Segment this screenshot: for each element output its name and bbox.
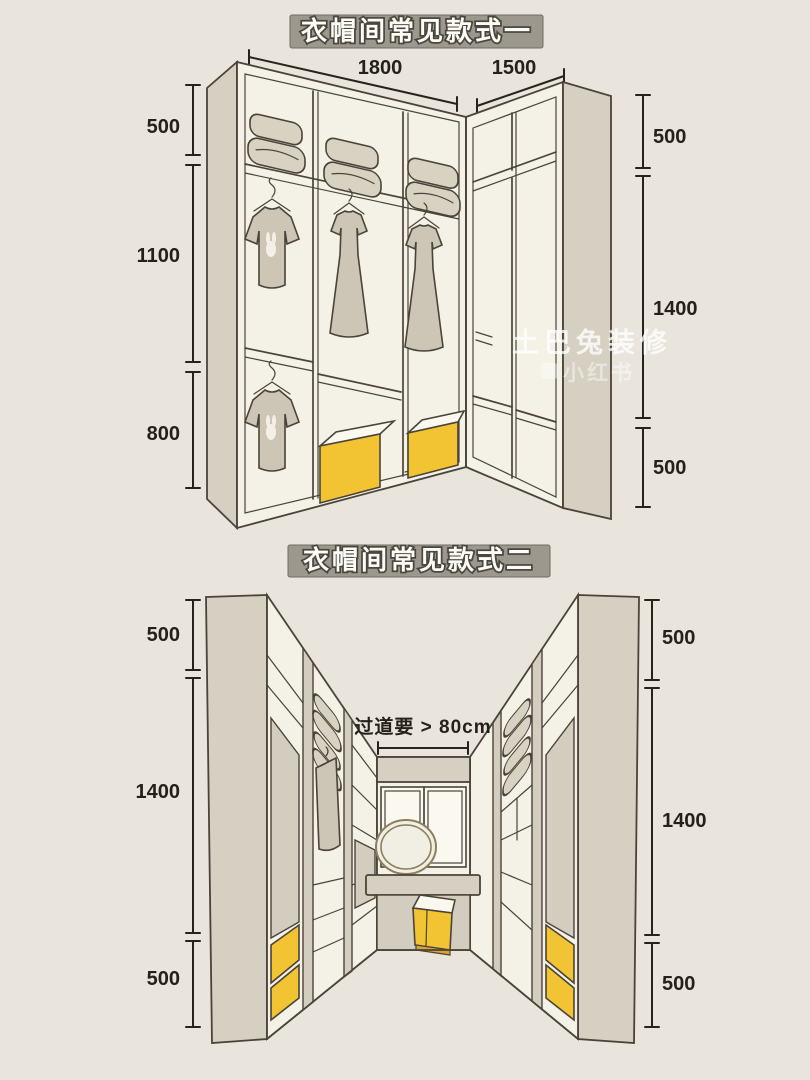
wardrobe-left-unit [207, 62, 466, 528]
right-divider-2 [493, 711, 501, 976]
diagram1-title: 衣帽间常见款式一 [301, 16, 533, 46]
vanity-counter [366, 875, 480, 895]
wardrobe-right-unit [466, 82, 611, 519]
right-dim-1400: 1400 [653, 298, 698, 320]
diagram2-title: 衣帽间常见款式二 [303, 545, 535, 575]
diagram-style-2: 衣帽间常见款式二 500 1400 500 500 1400 500 [0, 540, 810, 1080]
watermark-logo [541, 363, 558, 379]
d2-right-1400: 1400 [662, 810, 707, 832]
left-near-panel [206, 595, 267, 1043]
walkin-right-wall [470, 595, 639, 1043]
right-front-frame [466, 82, 563, 508]
stool-body [413, 908, 452, 950]
d2-left-1400: 1400 [136, 781, 181, 803]
walkin-left-wall [206, 595, 377, 1043]
left-dim-800: 800 [147, 423, 180, 445]
d2-left-500b: 500 [147, 968, 180, 990]
right-bayA-door [546, 718, 574, 938]
watermark-brand: 土巴兔装修 [512, 328, 672, 358]
right-height-dims: 500 1400 500 [636, 95, 698, 507]
aisle-note: 过道要 > 80cm [354, 715, 491, 738]
d2-left-height-dims: 500 1400 500 [136, 600, 201, 1027]
d2-right-height-dims: 500 1400 500 [645, 600, 707, 1027]
diagram-style-1: 衣帽间常见款式一 1800 1500 500 1100 800 500 [0, 0, 810, 540]
width-label-1500: 1500 [492, 57, 537, 79]
diagram1-banner: 衣帽间常见款式一 [290, 15, 543, 48]
right-dim-500a: 500 [653, 126, 686, 148]
width-label-1800: 1800 [358, 57, 403, 79]
poster-canvas: 衣帽间常见款式一 1800 1500 500 1100 800 500 [0, 0, 810, 1080]
round-mirror [376, 820, 436, 874]
d2-left-500a: 500 [147, 624, 180, 646]
left-divider-2 [344, 708, 352, 977]
watermark-platform: 小红书 [563, 361, 635, 385]
right-dim-500b: 500 [653, 457, 686, 479]
stool [413, 895, 455, 955]
right-divider-1 [532, 649, 542, 1009]
valance [377, 757, 470, 782]
left-dim-500: 500 [147, 116, 180, 138]
left-dim-1100: 1100 [137, 245, 180, 267]
left-side-panel [207, 62, 237, 528]
left-bayA-door [271, 718, 299, 938]
aisle-dimension: 过道要 > 80cm [354, 715, 491, 754]
right-side-panel [563, 82, 611, 519]
right-near-panel [578, 595, 639, 1043]
d2-right-500a: 500 [662, 627, 695, 649]
left-height-dims: 500 1100 800 [137, 85, 200, 488]
d2-right-500b: 500 [662, 973, 695, 995]
left-divider-1 [303, 648, 313, 1010]
diagram2-banner: 衣帽间常见款式二 [288, 545, 550, 577]
